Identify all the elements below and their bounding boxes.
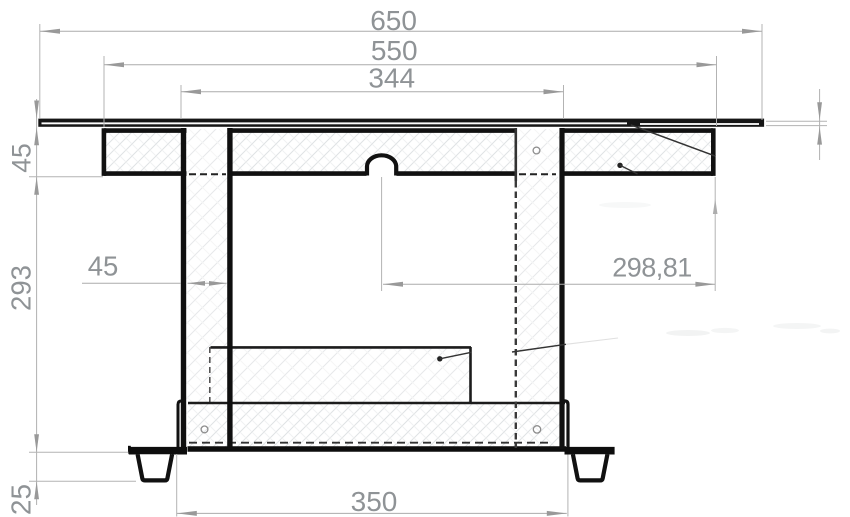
svg-text:45: 45 [88,251,119,282]
svg-text:45: 45 [7,143,37,172]
svg-text:293: 293 [6,265,37,311]
svg-text:25: 25 [6,484,37,515]
svg-text:650: 650 [370,5,417,36]
svg-text:350: 350 [351,486,398,517]
svg-text:344: 344 [368,62,415,93]
svg-text:298,81: 298,81 [612,253,692,283]
